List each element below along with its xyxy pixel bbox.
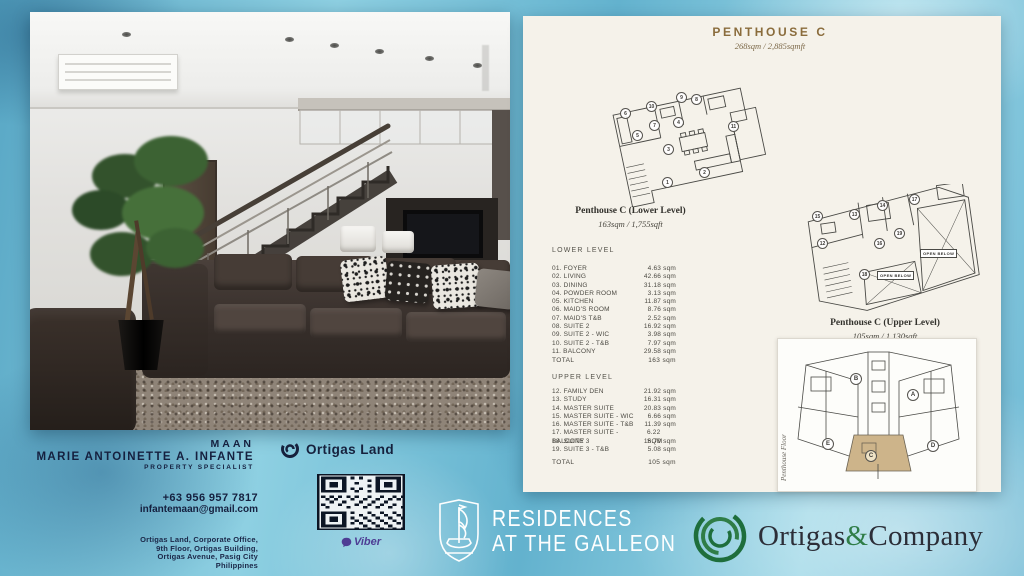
lower-level-plan: 1234567891011: [592, 75, 777, 207]
spec-row: 03. DINING 31.18 sqm: [552, 282, 676, 290]
damask-pillow: [431, 262, 482, 309]
ortigas-land-logo: Ortigas Land: [279, 438, 394, 460]
spec-row: 17. MASTER SUITE - BALCONY 6.22 SQM: [552, 429, 676, 437]
sofa-seat-cushion: [406, 312, 506, 342]
spec-row: 19. SUITE 3 - T&B 5.08 sqm: [552, 446, 676, 454]
residences-line1: RESIDENCES: [492, 506, 676, 531]
ampersand: &: [845, 520, 868, 552]
sofa-seat-cushion: [214, 304, 306, 334]
email-address: infantemaan@gmail.com: [96, 504, 258, 515]
sofa-seat-cushion: [310, 308, 402, 338]
penthouse-title: PENTHOUSE C: [620, 25, 920, 39]
room-number-marker: 15: [812, 211, 823, 222]
upper-level-plan-drawing: [795, 184, 995, 316]
agent-role: PROPERTY SPECIALIST: [0, 464, 254, 471]
room-number-marker: 14: [877, 200, 888, 211]
ac-vent: [58, 54, 178, 90]
viber-wordmark: Viber: [354, 536, 381, 548]
room-number-marker: 16: [874, 238, 885, 249]
drum-lamp: [382, 231, 414, 253]
spec-row: 12. FAMILY DEN 21.92 sqm: [552, 388, 676, 396]
spec-row: 07. MAID'S T&B 2.52 sqm: [552, 315, 676, 323]
room-number-marker: 1: [662, 177, 673, 188]
room-number-marker: 9: [676, 92, 687, 103]
viber-badge: Viber: [317, 536, 405, 548]
room-number-marker: 5: [632, 130, 643, 141]
upper-level-total: TOTAL105 sqm: [552, 459, 676, 466]
upper-level-table: 12. FAMILY DEN 21.92 sqm 13. STUDY 16.31…: [552, 388, 676, 454]
spec-row: 09. SUITE 2 - WIC 3.98 sqm: [552, 331, 676, 339]
downlight: [285, 37, 294, 42]
room-number-marker: 6: [620, 108, 631, 119]
agent-block: MAAN MARIE ANTOINETTE A. INFANTE PROPERT…: [0, 438, 254, 471]
room-number-marker: 13: [849, 209, 860, 220]
indoor-plant: [64, 124, 224, 354]
floorplan-panel: PENTHOUSE C 268sqm / 2,885sqmft: [523, 16, 1001, 492]
keyplan-side-label: Penthouse Floor: [780, 391, 788, 481]
room-number-marker: 12: [817, 238, 828, 249]
room-number-marker: 19: [894, 228, 905, 239]
spec-row: 05. KITCHEN 11.87 sqm: [552, 298, 676, 306]
agent-nickname: MAAN: [0, 438, 254, 450]
qr-block: Viber: [317, 474, 405, 548]
gray-pillow: [474, 268, 510, 310]
spec-row: 02. LIVING 42.66 sqm: [552, 273, 676, 281]
office-address: Ortigas Land, Corporate Office,9th Floor…: [96, 536, 258, 570]
open-below-label: OPEN BELOW: [920, 249, 957, 258]
damask-pillow: [340, 255, 391, 302]
downlight: [425, 56, 434, 61]
keyplan-unit-marker: D: [927, 440, 939, 452]
room-number-marker: 11: [728, 121, 739, 132]
room-number-marker: 17: [909, 194, 920, 205]
spec-row: 11. BALCONY 29.58 sqm: [552, 348, 676, 356]
spec-row: 16. MASTER SUITE - T&B 11.39 sqm: [552, 421, 676, 429]
keyplan-unit-marker: E: [822, 438, 834, 450]
spec-row: 04. POWDER ROOM 3.13 sqm: [552, 290, 676, 298]
room-number-marker: 18: [859, 269, 870, 280]
living-room-photo: [30, 12, 510, 430]
room-number-marker: 3: [663, 144, 674, 155]
lower-level-label: LOWER LEVEL: [552, 247, 615, 254]
photo-watermark: [482, 45, 489, 91]
address-line: Philippines: [96, 562, 258, 571]
upper-level-plan: 1213141516171819 OPEN BELOW OPEN BELOW: [795, 184, 995, 316]
residences-galleon-logo: RESIDENCES AT THE GALLEON: [436, 498, 709, 564]
sofa-back-cushion: [214, 254, 292, 290]
ortigas-company-swirl-icon: [690, 506, 750, 566]
qr-code: [317, 474, 405, 530]
room-number-marker: 8: [691, 94, 702, 105]
spec-row: 08. SUITE 2 16.92 sqm: [552, 323, 676, 331]
viber-icon: [341, 537, 352, 548]
lower-level-table: 01. FOYER 4.63 sqm 02. LIVING 42.66 sqm …: [552, 265, 676, 356]
ortigas-company-logo: Ortigas&Company: [690, 506, 983, 566]
lower-level-subheading: 163sqm / 1,755sqft: [533, 219, 728, 229]
spec-row: 10. SUITE 2 - T&B 7.97 sqm: [552, 340, 676, 348]
phone-number: +63 956 957 7817: [96, 492, 258, 504]
ortigas-company-wordmark: Ortigas&Company: [758, 520, 983, 553]
room-number-marker: 10: [646, 101, 657, 112]
downlight: [375, 49, 384, 54]
keyplan-unit-marker: A: [907, 389, 919, 401]
lower-level-total: TOTAL163 sqm: [552, 357, 676, 364]
spec-row: 01. FOYER 4.63 sqm: [552, 265, 676, 273]
ortigas-land-swirl-icon: [279, 438, 301, 460]
penthouse-subtitle: 268sqm / 2,885sqmft: [620, 41, 920, 51]
agent-name: MARIE ANTOINETTE A. INFANTE: [0, 451, 254, 463]
dark-pillow: [384, 260, 431, 304]
contact-block: +63 956 957 7817 infantemaan@gmail.com: [96, 492, 258, 515]
downlight: [122, 32, 131, 37]
flyer-canvas: PENTHOUSE C 268sqm / 2,885sqmft: [0, 0, 1024, 576]
spec-row: 14. MASTER SUITE 20.83 sqm: [552, 405, 676, 413]
room-number-marker: 4: [673, 117, 684, 128]
room-number-marker: 2: [699, 167, 710, 178]
keyplan-unit-marker: B: [850, 373, 862, 385]
galleon-shield-icon: [436, 498, 482, 564]
keyplan-box: Penthouse Floor: [777, 338, 977, 492]
room-number-marker: 7: [649, 120, 660, 131]
ortigas-land-wordmark: Ortigas Land: [306, 442, 394, 457]
spec-row: 18. SUITE 3 16.79 sqm: [552, 438, 676, 446]
keyplan-unit-marker: C: [865, 450, 877, 462]
open-below-label: OPEN BELOW: [877, 271, 914, 280]
downlight: [330, 43, 339, 48]
spec-row: 15. MASTER SUITE - WIC 6.66 sqm: [552, 413, 676, 421]
spec-row: 06. MAID'S ROOM 8.76 sqm: [552, 306, 676, 314]
spec-row: 13. STUDY 16.31 sqm: [552, 396, 676, 404]
keyplan-drawing: [796, 347, 961, 485]
drum-lamp: [340, 226, 376, 252]
residences-line2: AT THE GALLEON: [492, 531, 676, 556]
upper-level-heading: Penthouse C (Upper Level): [785, 318, 985, 328]
downlight: [473, 63, 482, 68]
upper-level-label: UPPER LEVEL: [552, 374, 613, 381]
lower-level-heading: Penthouse C (Lower Level): [533, 206, 728, 216]
